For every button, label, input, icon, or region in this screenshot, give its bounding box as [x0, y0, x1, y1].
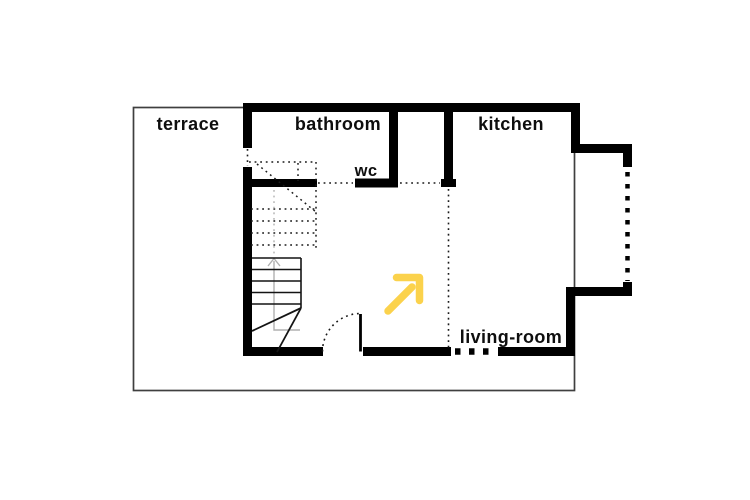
walls — [243, 103, 628, 352]
arrow-shaft — [388, 287, 412, 311]
floor-plan-drawing: terrace bathroom wc kitchen living-room — [0, 0, 750, 500]
room-label-bathroom: bathroom — [295, 114, 381, 134]
staircase-lower-flight — [252, 258, 301, 352]
door-swing-arc — [323, 314, 361, 352]
room-label-kitchen: kitchen — [478, 114, 544, 134]
staircase — [249, 162, 316, 352]
stair-winder-tread — [252, 308, 301, 331]
room-label-wc: wc — [354, 162, 378, 180]
floor-plan: terrace bathroom wc kitchen living-room — [0, 0, 750, 500]
up-right-arrow-icon — [388, 278, 420, 312]
room-label-terrace: terrace — [157, 114, 220, 134]
windows — [455, 172, 628, 352]
wall-bottom-left-and-left-lower — [248, 167, 324, 352]
entrance-door — [323, 314, 361, 352]
staircase-walkline — [268, 190, 300, 330]
stair-break-line — [257, 164, 316, 212]
room-labels: terrace bathroom wc kitchen living-room — [157, 114, 563, 347]
room-label-living-room: living-room — [460, 327, 562, 347]
staircase-upper-flight-dotted — [249, 162, 316, 250]
